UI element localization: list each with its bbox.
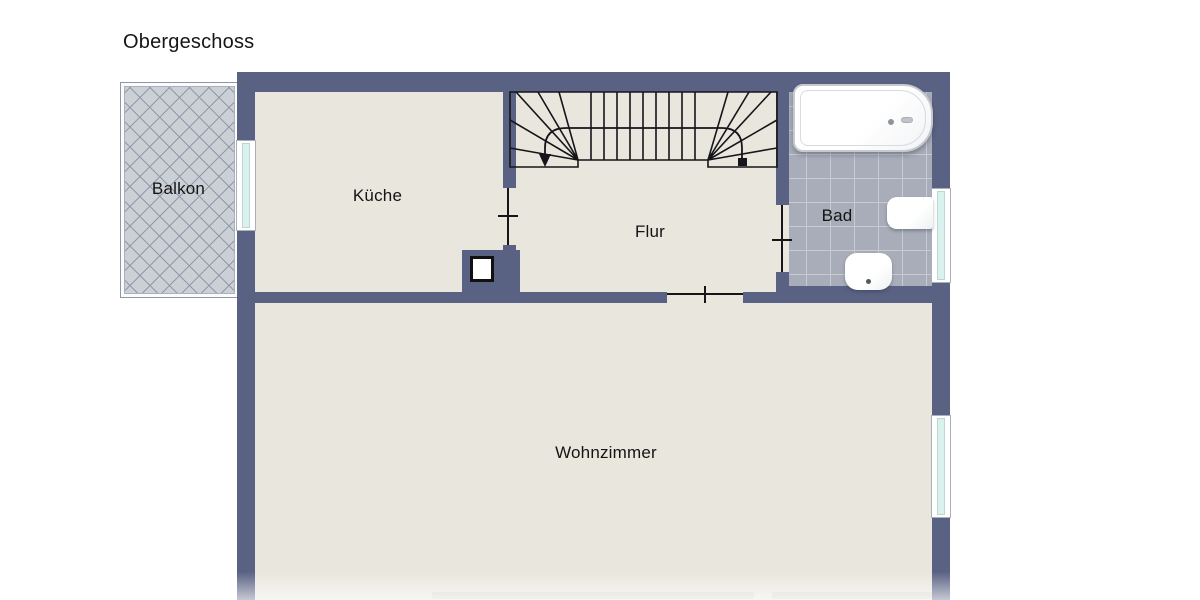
walkline-arrow-icon: [539, 154, 551, 167]
bathtub-icon: [793, 84, 933, 152]
wall-mid-right-segment: [743, 292, 776, 303]
room-label-bad: Bad: [807, 206, 867, 226]
room-label-kueche: Küche: [330, 186, 425, 206]
walkline-start-marker: [738, 158, 747, 166]
window-icon-livingroom: [931, 415, 951, 518]
cutoff-furniture-hint: [772, 592, 932, 599]
door-opening-livingroom-tick: [704, 286, 706, 303]
cutoff-furniture-hint: [432, 592, 754, 599]
window-glass: [937, 191, 945, 280]
floor-plan-canvas: Obergeschoss: [0, 0, 1200, 600]
door-opening-bathroom-tick: [772, 239, 792, 241]
bathtub-drain: [888, 119, 894, 125]
toilet-icon: [887, 197, 933, 229]
room-label-wohnzimmer: Wohnzimmer: [530, 443, 682, 463]
wall-right: [932, 92, 950, 600]
staircase-icon: [508, 90, 780, 170]
window-glass: [242, 143, 250, 228]
door-opening-kitchen-tick: [498, 215, 518, 217]
room-label-balkon: Balkon: [120, 179, 237, 199]
wall-hall-bath-lower: [776, 272, 789, 303]
bathtub-tap: [901, 117, 913, 123]
wall-mid-left-segment: [255, 292, 667, 303]
room-label-flur: Flur: [610, 222, 690, 242]
washbasin-drain: [866, 279, 871, 284]
window-icon-balcony: [236, 140, 256, 231]
shaft-icon: [470, 256, 494, 282]
window-glass: [937, 418, 945, 515]
floor-title: Obergeschoss: [123, 31, 254, 54]
washbasin-icon: [845, 253, 892, 290]
window-icon-bathroom: [931, 188, 951, 283]
